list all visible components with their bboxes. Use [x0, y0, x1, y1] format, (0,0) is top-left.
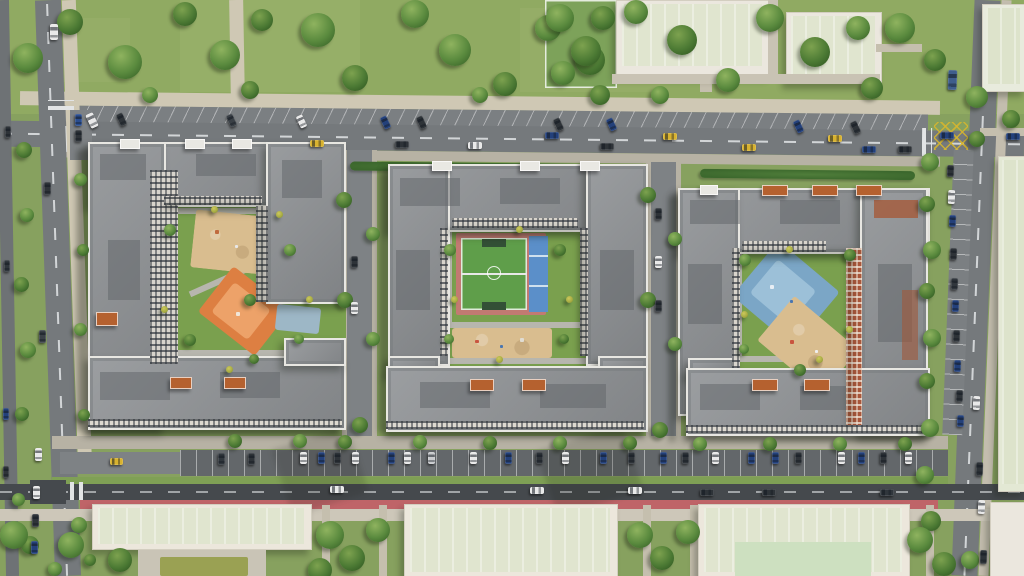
- entrance-canopy: [120, 139, 140, 149]
- playground-equipment: [815, 350, 818, 353]
- playground-equipment: [475, 340, 479, 343]
- car: [545, 132, 559, 139]
- tree: [401, 0, 429, 28]
- inner-courtyard: [735, 542, 871, 576]
- tree: [366, 518, 390, 542]
- bottom-verge: [52, 477, 948, 484]
- yellow-bush: [516, 226, 523, 233]
- yellow-bush: [816, 356, 823, 363]
- pale-roof: [1002, 160, 1024, 484]
- tree: [173, 2, 197, 26]
- parked-car: [772, 452, 779, 464]
- tree: [352, 417, 368, 433]
- roof-patch: [690, 200, 740, 224]
- parked-car: [957, 415, 964, 427]
- yard-olive: [160, 557, 248, 576]
- tree: [627, 522, 653, 548]
- sports-field-circle: [487, 266, 501, 280]
- tree: [228, 434, 242, 448]
- orange-canopy: [804, 379, 830, 391]
- roof-patch: [500, 178, 560, 204]
- court-line: [529, 255, 548, 257]
- tree: [966, 86, 988, 108]
- sports-goal: [482, 302, 506, 310]
- car: [351, 256, 358, 268]
- tree: [78, 409, 90, 421]
- parked-car: [600, 452, 607, 464]
- parked-car: [334, 452, 341, 464]
- car: [3, 408, 9, 420]
- yellow-bush: [226, 366, 233, 373]
- courtyard-tree: [554, 244, 566, 256]
- orange-canopy: [752, 379, 778, 391]
- parked-car: [880, 452, 887, 464]
- court-line: [529, 285, 548, 287]
- parked-car: [660, 452, 667, 464]
- orange-canopy: [224, 377, 246, 389]
- playground-equipment: [790, 300, 793, 303]
- pale-roof: [986, 8, 1020, 84]
- roof-patch: [282, 160, 322, 198]
- car: [351, 302, 358, 314]
- roof-patch: [196, 154, 256, 176]
- car: [1006, 133, 1020, 140]
- crosswalk: [70, 482, 86, 500]
- courtyard-shadow: [846, 252, 853, 428]
- sand-playground: [452, 328, 552, 358]
- tree: [591, 6, 615, 30]
- parked-car: [318, 452, 325, 464]
- courtyard-tree: [794, 364, 806, 376]
- tree: [58, 532, 84, 558]
- tree: [20, 208, 34, 222]
- tree: [241, 81, 259, 99]
- lane-between-blocks: [372, 150, 377, 442]
- car: [973, 396, 981, 410]
- parked-car: [505, 452, 512, 464]
- roof-patch: [780, 200, 840, 224]
- tree: [71, 517, 87, 533]
- roof-patch: [108, 240, 140, 300]
- playground-equipment: [770, 285, 774, 289]
- car: [742, 144, 756, 151]
- tree: [413, 435, 427, 449]
- playground-equipment: [236, 312, 240, 316]
- roof-patch: [688, 264, 722, 324]
- tree: [338, 435, 352, 449]
- tree: [493, 72, 517, 96]
- courtyard-path: [446, 358, 586, 364]
- tree: [969, 131, 985, 147]
- tree: [74, 173, 87, 186]
- yellow-bush: [496, 356, 503, 363]
- sports-goal: [482, 239, 506, 247]
- tree: [210, 40, 240, 70]
- tree: [640, 292, 656, 308]
- tree: [13, 43, 43, 73]
- tree: [571, 36, 601, 66]
- tree: [472, 87, 488, 103]
- car: [762, 489, 776, 496]
- car: [35, 448, 42, 461]
- car: [880, 489, 894, 496]
- entrance-canopy: [232, 139, 252, 149]
- tree: [308, 558, 332, 576]
- parked-car: [952, 300, 959, 312]
- tree: [916, 466, 934, 484]
- block-shadow: [76, 150, 86, 430]
- courtyard-shadow: [448, 228, 578, 235]
- tree: [676, 520, 700, 544]
- car: [33, 486, 40, 499]
- tree: [251, 9, 273, 31]
- roof-patch: [396, 250, 430, 310]
- pale-roof: [98, 508, 304, 544]
- tree: [12, 493, 25, 506]
- parked-car: [795, 452, 802, 464]
- tree: [15, 407, 29, 421]
- tree: [921, 153, 939, 171]
- car: [31, 541, 38, 554]
- car: [50, 24, 58, 40]
- tree: [0, 521, 28, 549]
- parked-car: [388, 452, 395, 464]
- orange-canopy: [470, 379, 494, 391]
- left-block-step: [284, 338, 346, 366]
- courtyard-tree: [739, 254, 751, 266]
- tree: [961, 551, 979, 569]
- tree: [439, 34, 471, 66]
- courtyard-tree: [844, 249, 856, 261]
- courtyard-tree: [559, 334, 569, 344]
- entrance-canopy: [580, 161, 600, 171]
- entrance-canopy: [700, 185, 718, 195]
- yellow-bush: [451, 296, 458, 303]
- car: [3, 466, 9, 478]
- car: [663, 133, 677, 140]
- playground-equipment: [520, 338, 524, 342]
- pale-building: [990, 502, 1024, 576]
- bus: [948, 70, 958, 90]
- tree: [301, 13, 335, 47]
- parked-car: [948, 190, 956, 204]
- tree: [756, 4, 784, 32]
- tree: [108, 548, 132, 572]
- car: [655, 300, 662, 312]
- facade-windows: [686, 425, 926, 433]
- yellow-bush: [566, 296, 573, 303]
- yellow-bush: [786, 246, 793, 253]
- courtyard-shadow: [258, 210, 265, 306]
- roof-patch: [400, 178, 460, 206]
- orange-canopy: [856, 185, 882, 196]
- parked-car: [949, 215, 956, 227]
- parked-car: [75, 114, 82, 126]
- tree: [668, 337, 682, 351]
- car: [395, 141, 409, 148]
- yellow-bush: [161, 306, 168, 313]
- tree: [921, 419, 939, 437]
- entrance-canopy: [432, 161, 452, 171]
- tree: [650, 546, 674, 570]
- tree: [366, 227, 380, 241]
- tree: [800, 37, 830, 67]
- pale-roof: [410, 508, 610, 572]
- walk: [612, 74, 880, 84]
- tree: [84, 554, 96, 566]
- courtyard-tree: [184, 334, 196, 346]
- car: [310, 140, 324, 147]
- tree: [861, 77, 883, 99]
- playground-equipment: [500, 345, 503, 348]
- parked-car: [712, 452, 719, 464]
- tree: [919, 196, 935, 212]
- parked-car: [947, 165, 954, 177]
- courtyard-tree: [444, 334, 454, 344]
- tree: [716, 68, 740, 92]
- car: [32, 514, 39, 527]
- tree: [885, 13, 915, 43]
- tree: [553, 436, 567, 450]
- walk: [876, 44, 922, 52]
- car: [330, 486, 344, 493]
- parked-car: [75, 130, 82, 142]
- courtyard-tree: [444, 244, 456, 256]
- entrance-canopy: [185, 139, 205, 149]
- tree: [763, 437, 777, 451]
- courtyard-tree: [294, 334, 304, 344]
- car: [655, 208, 662, 220]
- tree: [14, 277, 29, 292]
- tree: [640, 187, 656, 203]
- tree: [293, 434, 307, 448]
- car: [980, 550, 988, 564]
- car: [700, 489, 714, 496]
- facade-windows: [452, 218, 578, 228]
- tree: [919, 373, 935, 389]
- orange-canopy: [812, 185, 838, 196]
- roof-patch: [600, 250, 634, 310]
- tree: [77, 244, 89, 256]
- parked-car: [950, 248, 957, 260]
- car: [468, 142, 482, 149]
- car: [978, 500, 986, 514]
- tree: [336, 192, 352, 208]
- tree: [551, 61, 575, 85]
- block-shadow: [378, 172, 386, 432]
- tree: [342, 65, 368, 91]
- tree: [667, 25, 697, 55]
- tree: [651, 86, 669, 104]
- playground-equipment: [790, 340, 794, 344]
- car: [110, 458, 123, 465]
- car: [940, 132, 954, 139]
- crosswalk: [48, 100, 74, 110]
- tree: [907, 527, 933, 553]
- parked-car: [953, 330, 960, 342]
- car: [600, 143, 614, 150]
- car: [628, 487, 642, 494]
- sports-court-blue: [529, 236, 548, 312]
- parked-car: [562, 452, 569, 464]
- parked-car: [682, 452, 689, 464]
- car: [5, 126, 11, 138]
- tree: [846, 16, 870, 40]
- parked-car: [428, 452, 435, 464]
- car: [44, 182, 51, 195]
- facade-windows: [386, 421, 644, 429]
- playground-equipment: [235, 245, 238, 248]
- tree: [316, 521, 344, 549]
- entrance-canopy: [520, 161, 540, 171]
- yellow-bush: [846, 326, 853, 333]
- roof-patch: [540, 384, 606, 408]
- car: [4, 260, 10, 272]
- tree: [693, 437, 707, 451]
- yellow-bush: [741, 311, 748, 318]
- tree: [74, 323, 87, 336]
- blue-mat: [275, 304, 321, 334]
- tree: [339, 545, 365, 571]
- car: [530, 487, 544, 494]
- parked-car: [954, 360, 961, 372]
- garden-pavilion: [96, 312, 118, 326]
- parked-car: [748, 452, 755, 464]
- tree: [1002, 110, 1020, 128]
- tree: [898, 437, 912, 451]
- tree: [16, 142, 32, 158]
- tree: [366, 332, 380, 346]
- courtyard-tree: [739, 344, 749, 354]
- bottom-road-dashes: [0, 491, 1024, 493]
- tree: [48, 562, 62, 576]
- parked-car: [628, 452, 635, 464]
- car: [655, 256, 662, 268]
- tree: [624, 0, 648, 24]
- roof-patch: [700, 384, 760, 410]
- tree: [623, 436, 637, 450]
- roof-accent-brick: [874, 200, 918, 218]
- tree: [668, 232, 682, 246]
- yellow-bush: [306, 296, 313, 303]
- playground-equipment: [215, 230, 219, 234]
- tree: [108, 45, 142, 79]
- parked-car: [838, 452, 845, 464]
- yellow-bush: [211, 206, 218, 213]
- parked-car: [905, 452, 912, 464]
- car: [898, 146, 912, 153]
- tree: [57, 9, 83, 35]
- crosswalk: [922, 128, 932, 156]
- tree: [919, 283, 935, 299]
- car: [976, 462, 984, 476]
- courtyard-shadow: [578, 232, 585, 356]
- tree: [652, 422, 668, 438]
- parked-car: [248, 453, 255, 465]
- orange-canopy: [522, 379, 546, 391]
- roof-accent-brick: [902, 290, 918, 360]
- orange-canopy: [170, 377, 192, 389]
- parked-car: [956, 390, 963, 402]
- tree: [923, 329, 941, 347]
- tree: [590, 85, 610, 105]
- orange-canopy: [762, 185, 788, 196]
- car: [828, 135, 842, 142]
- car: [39, 330, 46, 343]
- tree: [20, 342, 36, 358]
- courtyard-shadow: [738, 250, 858, 257]
- tree: [546, 4, 574, 32]
- car: [862, 146, 876, 153]
- tree: [932, 552, 956, 576]
- tree: [924, 49, 946, 71]
- courtyard-tree: [164, 224, 176, 236]
- yellow-bush: [276, 211, 283, 218]
- courtyard-tree: [284, 244, 296, 256]
- courtyard-tree: [244, 294, 256, 306]
- tree: [483, 436, 497, 450]
- parked-car: [536, 452, 543, 464]
- courtyard-tree: [249, 354, 259, 364]
- roof-patch: [100, 372, 170, 400]
- parked-car: [404, 452, 411, 464]
- facade-windows: [88, 419, 342, 427]
- roof-patch: [100, 154, 146, 180]
- tree: [833, 437, 847, 451]
- parked-car: [470, 452, 477, 464]
- parked-car: [218, 453, 225, 465]
- parked-car: [858, 452, 865, 464]
- parked-car: [352, 452, 359, 464]
- parked-car: [951, 278, 958, 290]
- aerial-render-canvas: [0, 0, 1024, 576]
- tree: [923, 241, 941, 259]
- tree: [142, 87, 158, 103]
- parked-car: [300, 452, 307, 464]
